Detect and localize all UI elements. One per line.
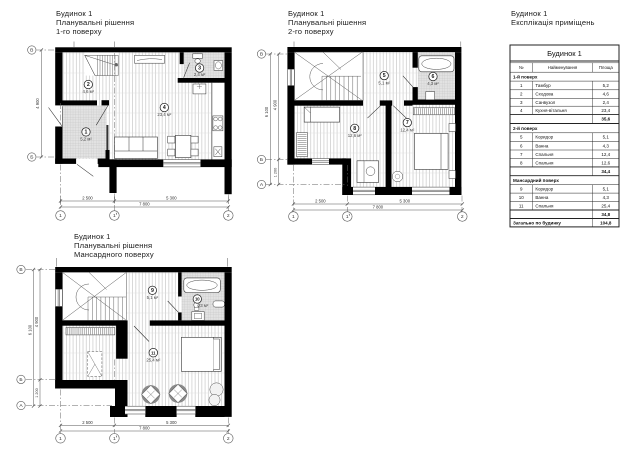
svg-text:4 900: 4 900 xyxy=(34,316,39,327)
svg-text:2 500: 2 500 xyxy=(315,199,326,204)
svg-text:Тамбур: Тамбур xyxy=(535,83,551,88)
svg-text:В: В xyxy=(19,267,22,273)
svg-text:1 200: 1 200 xyxy=(273,168,277,178)
svg-text:7: 7 xyxy=(406,120,409,126)
svg-text:1: 1 xyxy=(59,213,62,219)
svg-text:Б: Б xyxy=(30,155,33,161)
svg-text:7 800: 7 800 xyxy=(139,202,150,207)
svg-text:7 800: 7 800 xyxy=(373,205,384,210)
svg-text:34,4: 34,4 xyxy=(601,169,610,174)
svg-text:2,4 м²: 2,4 м² xyxy=(194,72,206,77)
svg-text:25,4 м²: 25,4 м² xyxy=(146,357,161,362)
svg-text:1-й поверх: 1-й поверх xyxy=(513,73,538,79)
svg-text:4,6 м²: 4,6 м² xyxy=(83,89,95,94)
svg-text:10: 10 xyxy=(519,195,525,200)
svg-text:1: 1 xyxy=(113,213,116,219)
svg-text:11: 11 xyxy=(519,203,524,208)
svg-text:12,4: 12,4 xyxy=(601,152,610,157)
svg-text:Кухня-вітальня: Кухня-вітальня xyxy=(535,108,567,113)
svg-text:35,6: 35,6 xyxy=(601,117,610,122)
svg-text:10: 10 xyxy=(195,297,200,302)
svg-text:Б: Б xyxy=(19,377,22,383)
svg-text:Санвузол: Санвузол xyxy=(535,100,555,105)
svg-text:5,2: 5,2 xyxy=(603,83,610,88)
svg-text:9: 9 xyxy=(151,288,154,294)
svg-text:4,3: 4,3 xyxy=(603,195,610,200)
svg-text:Коридор: Коридор xyxy=(535,135,553,140)
svg-text:4,3 м²: 4,3 м² xyxy=(427,81,439,86)
svg-text:Б: Б xyxy=(260,157,263,163)
svg-text:5,2 м²: 5,2 м² xyxy=(80,137,92,142)
svg-text:5,1 м²: 5,1 м² xyxy=(378,80,390,85)
svg-text:1 200: 1 200 xyxy=(35,388,39,398)
svg-text:Будинок 1: Будинок 1 xyxy=(547,49,582,58)
svg-text:Коридор: Коридор xyxy=(535,187,553,192)
svg-text:Спальня: Спальня xyxy=(535,203,554,208)
svg-text:4: 4 xyxy=(163,105,166,111)
svg-text:Найменування: Найменування xyxy=(548,65,578,70)
svg-text:12,6 м²: 12,6 м² xyxy=(348,133,363,138)
svg-text:5,1 м²: 5,1 м² xyxy=(147,295,159,300)
svg-text:5: 5 xyxy=(383,73,386,79)
svg-text:2 500: 2 500 xyxy=(82,420,93,425)
svg-text:2: 2 xyxy=(87,82,90,88)
svg-text:Загально по будинку: Загально по будинку xyxy=(513,219,561,225)
svg-text:2: 2 xyxy=(461,214,464,220)
svg-text:4,3: 4,3 xyxy=(603,143,610,148)
svg-text:12,4 м²: 12,4 м² xyxy=(400,127,415,132)
svg-text:3: 3 xyxy=(198,66,201,72)
svg-text:4 900: 4 900 xyxy=(35,98,40,109)
svg-text:6 100: 6 100 xyxy=(27,324,32,335)
svg-text:В: В xyxy=(30,48,33,54)
svg-text:1: 1 xyxy=(346,214,349,220)
svg-text:104,8: 104,8 xyxy=(600,220,612,225)
svg-text:В: В xyxy=(260,52,263,58)
svg-text:Спальня: Спальня xyxy=(535,152,554,157)
svg-text:Мансардний поверх: Мансардний поверх xyxy=(513,177,559,183)
svg-text:2: 2 xyxy=(227,436,230,442)
svg-text:5,1: 5,1 xyxy=(603,187,610,192)
svg-text:2-й поверх: 2-й поверх xyxy=(513,125,538,131)
svg-text:5 300: 5 300 xyxy=(166,196,177,201)
svg-text:1: 1 xyxy=(59,436,62,442)
svg-text:8: 8 xyxy=(353,126,356,132)
svg-text:Площа: Площа xyxy=(599,65,614,70)
svg-text:№: № xyxy=(519,65,524,70)
svg-text:1: 1 xyxy=(113,436,116,442)
svg-text:Ванна: Ванна xyxy=(535,195,548,200)
svg-text:5 300: 5 300 xyxy=(166,420,177,425)
svg-text:6 100: 6 100 xyxy=(264,106,269,117)
svg-text:25,4: 25,4 xyxy=(601,203,610,208)
svg-text:23,4: 23,4 xyxy=(601,108,610,113)
svg-text:11: 11 xyxy=(151,350,156,355)
svg-text:2,4: 2,4 xyxy=(603,100,610,105)
svg-text:12,6: 12,6 xyxy=(601,160,610,165)
svg-text:5,1: 5,1 xyxy=(603,135,610,140)
svg-text:Ванна: Ванна xyxy=(535,143,548,148)
svg-text:23,4 м²: 23,4 м² xyxy=(157,112,172,117)
svg-text:6: 6 xyxy=(432,74,435,80)
svg-text:2 500: 2 500 xyxy=(82,196,93,201)
svg-text:7 800: 7 800 xyxy=(139,426,150,431)
svg-text:2: 2 xyxy=(227,213,230,219)
svg-text:4,6: 4,6 xyxy=(603,92,610,97)
svg-text:5 300: 5 300 xyxy=(400,199,411,204)
svg-text:Спальня: Спальня xyxy=(535,160,554,165)
svg-text:1: 1 xyxy=(292,214,295,220)
svg-text:34,8: 34,8 xyxy=(601,212,610,217)
svg-text:4 900: 4 900 xyxy=(272,99,277,110)
svg-text:4,3 м²: 4,3 м² xyxy=(197,303,209,308)
svg-text:1: 1 xyxy=(85,130,88,136)
svg-text:Сходова: Сходова xyxy=(535,92,553,97)
